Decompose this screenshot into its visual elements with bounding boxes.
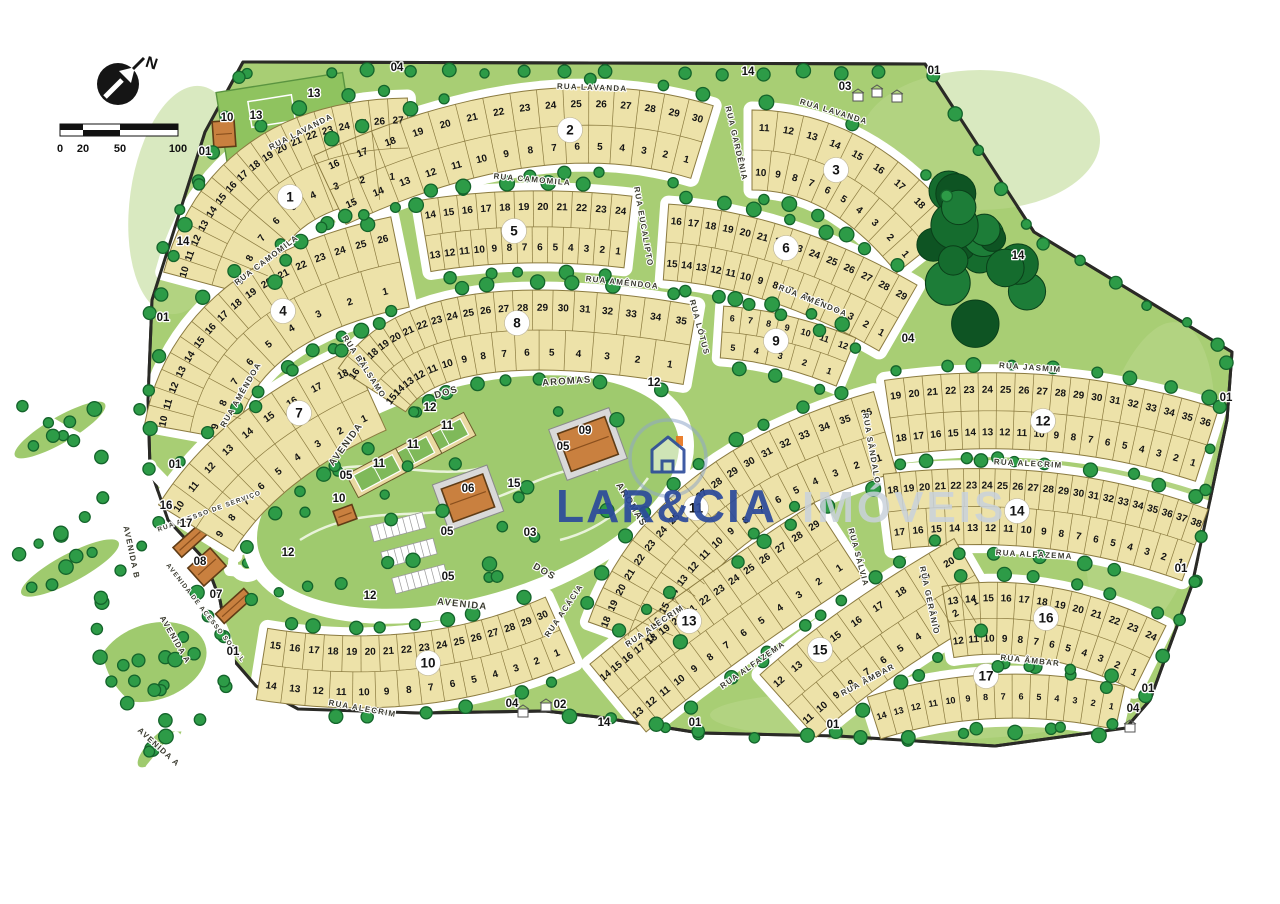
lot-number: 29 — [1072, 389, 1085, 401]
tree-icon — [1101, 682, 1113, 694]
lot-number: 7 — [522, 242, 528, 253]
tree-icon — [193, 179, 204, 190]
lot-number: 12 — [999, 427, 1011, 438]
tree-icon — [280, 254, 292, 266]
tree-icon — [252, 386, 264, 398]
tree-icon — [157, 242, 169, 254]
tree-icon — [295, 486, 305, 496]
tree-icon — [339, 209, 352, 222]
lot-number: 8 — [506, 243, 512, 254]
tree-icon — [815, 384, 825, 394]
tree-icon — [17, 401, 28, 412]
area-label: 01 — [157, 312, 170, 324]
lot-number: 23 — [595, 204, 607, 216]
tree-icon — [749, 733, 759, 743]
tree-icon — [194, 714, 205, 725]
tree-icon — [959, 728, 969, 738]
tree-icon — [891, 259, 904, 272]
tree-icon — [1195, 531, 1207, 543]
tree-icon — [439, 94, 449, 104]
lot-number: 12 — [952, 635, 965, 647]
tree-icon — [816, 610, 826, 620]
tree-icon — [46, 579, 58, 591]
lot-number: 19 — [518, 202, 530, 213]
lot-number: 22 — [945, 385, 957, 397]
tree-icon — [68, 435, 80, 447]
tree-icon — [869, 571, 882, 584]
tree-icon — [402, 461, 413, 472]
lot-number: 14 — [965, 427, 977, 438]
tree-icon — [547, 677, 557, 687]
tree-icon — [1211, 338, 1224, 351]
area-label: 04 — [1127, 703, 1140, 715]
forest-tree-icon — [939, 246, 968, 275]
lot-number: 13 — [982, 427, 994, 438]
tree-icon — [405, 66, 416, 77]
tree-icon — [443, 63, 457, 77]
lot-number: 16 — [930, 429, 942, 441]
area-label: 01 — [227, 646, 240, 658]
tree-icon — [1200, 484, 1211, 495]
lot-number: 9 — [965, 693, 971, 703]
block-number: 14 — [1009, 504, 1025, 519]
tree-icon — [613, 624, 626, 637]
tree-icon — [300, 507, 310, 517]
area-label: 16 — [160, 500, 173, 512]
area-label: 10 — [333, 493, 346, 505]
tree-icon — [856, 703, 870, 717]
tree-icon — [785, 214, 795, 224]
tree-icon — [269, 507, 282, 520]
lot-number: 5 — [597, 142, 603, 153]
tree-icon — [292, 101, 307, 116]
tree-icon — [379, 85, 390, 96]
tree-icon — [785, 519, 796, 530]
tree-icon — [1174, 614, 1185, 625]
tree-icon — [531, 275, 545, 289]
tree-icon — [362, 443, 374, 455]
lot-number: 5 — [552, 242, 558, 253]
tree-icon — [409, 407, 419, 417]
lot-number: 20 — [365, 647, 377, 658]
tree-icon — [1027, 571, 1039, 583]
lot-number: 19 — [890, 390, 903, 402]
lot-number: 15 — [666, 259, 678, 271]
lot-number: 26 — [1018, 385, 1030, 397]
tree-icon — [79, 512, 90, 523]
lot-number: 10 — [473, 244, 485, 256]
area-label: 04 — [902, 333, 915, 345]
area-label: 13 — [308, 88, 321, 100]
tree-icon — [835, 317, 849, 331]
area-label: 12 — [648, 377, 661, 389]
tree-icon — [325, 132, 339, 146]
lot-number: 21 — [926, 387, 938, 399]
tree-icon — [317, 467, 331, 481]
area-label: 03 — [839, 81, 852, 93]
lot-number: 10 — [1020, 525, 1032, 537]
lot-number: 28 — [1042, 484, 1055, 496]
lot-number: 25 — [570, 99, 582, 110]
tree-icon — [129, 675, 141, 687]
lot-number: 30 — [1072, 487, 1085, 500]
tree-icon — [658, 80, 668, 90]
tree-icon — [373, 318, 385, 330]
tree-icon — [159, 729, 174, 744]
area-label: 01 — [928, 65, 941, 77]
tree-icon — [303, 581, 313, 591]
tree-icon — [87, 402, 102, 417]
tree-icon — [757, 68, 770, 81]
area-label: 07 — [210, 589, 223, 601]
block-number: 17 — [978, 669, 993, 684]
lot-number: 13 — [695, 262, 708, 275]
block-number: 2 — [566, 123, 574, 138]
tree-icon — [593, 375, 606, 388]
lot-number: 26 — [374, 116, 386, 128]
tree-icon — [747, 202, 762, 217]
tree-icon — [27, 582, 37, 592]
lot-number: 27 — [1027, 482, 1039, 494]
tree-icon — [995, 183, 1008, 196]
tree-icon — [380, 490, 389, 499]
area-label: 17 — [180, 518, 193, 530]
area-label: 11 — [441, 420, 454, 432]
tree-icon — [64, 416, 76, 428]
generated-map: 1011121314151617181920212223242526279876… — [8, 62, 1236, 773]
lot-number: 14 — [424, 209, 437, 222]
tree-icon — [554, 407, 563, 416]
tree-icon — [386, 306, 397, 317]
tree-icon — [812, 209, 824, 221]
area-label: 11 — [373, 458, 386, 470]
area-label: 15 — [508, 478, 521, 490]
tree-icon — [942, 360, 953, 371]
lot-number: 11 — [759, 123, 771, 135]
scale-tick: 0 — [57, 143, 63, 155]
tree-icon — [94, 591, 107, 604]
lot-number: 12 — [782, 125, 795, 138]
lot-number: 23 — [519, 102, 532, 114]
watermark-brand: LAR&CIA — [556, 480, 777, 532]
tree-icon — [1129, 468, 1140, 479]
lot-number: 13 — [947, 595, 960, 607]
lot-number: 25 — [1000, 385, 1012, 396]
tree-icon — [28, 441, 38, 451]
tree-icon — [391, 203, 401, 213]
lot-number: 14 — [965, 594, 977, 606]
lot-number: 24 — [982, 385, 994, 396]
tree-icon — [1220, 356, 1233, 369]
block-number: 9 — [772, 334, 780, 349]
tree-icon — [729, 432, 743, 446]
tree-icon — [59, 560, 73, 574]
lot-number: 5 — [1036, 692, 1042, 702]
lot-number: 9 — [1002, 634, 1008, 645]
lot-number: 5 — [549, 348, 555, 359]
lot-number: 4 — [568, 243, 574, 254]
lot-number: 8 — [983, 692, 989, 702]
tree-icon — [902, 731, 916, 745]
tree-icon — [790, 502, 800, 512]
tree-icon — [1072, 579, 1083, 590]
area-label: 10 — [221, 112, 234, 124]
tree-icon — [1142, 301, 1151, 310]
tree-icon — [159, 714, 172, 727]
lot-number: 16 — [670, 216, 682, 228]
tree-icon — [668, 288, 680, 300]
tree-icon — [329, 710, 343, 724]
block-number: 10 — [420, 656, 435, 671]
tree-icon — [1092, 367, 1103, 378]
scale-tick: 100 — [169, 143, 187, 155]
tree-icon — [649, 717, 663, 731]
tree-icon — [132, 654, 145, 667]
tree-icon — [168, 251, 179, 262]
tree-icon — [806, 309, 816, 319]
tree-icon — [679, 67, 691, 79]
lot-number: 15 — [947, 428, 959, 440]
lot-number: 15 — [269, 640, 282, 653]
tree-icon — [850, 343, 860, 353]
tree-icon — [354, 323, 369, 338]
tree-icon — [801, 728, 815, 742]
tree-icon — [992, 661, 1004, 673]
tree-icon — [974, 454, 987, 467]
lot-number: 26 — [480, 305, 493, 317]
tree-icon — [728, 292, 743, 307]
lot-number: 17 — [913, 430, 926, 442]
lot-number: 31 — [579, 304, 591, 316]
tree-icon — [449, 458, 461, 470]
lot-number: 11 — [336, 687, 347, 698]
lot-number: 6 — [524, 348, 530, 359]
tree-icon — [919, 454, 932, 467]
area-label: 12 — [364, 590, 377, 602]
tree-icon — [797, 401, 809, 413]
tree-icon — [406, 553, 420, 567]
tree-icon — [480, 69, 489, 78]
lot-number: 21 — [556, 202, 568, 213]
tree-icon — [444, 272, 456, 284]
lot-number: 7 — [1001, 691, 1006, 701]
site-plan-svg: 1011121314151617181920212223242526279876… — [0, 0, 1280, 904]
watermark-suffix: IMÓVEIS — [802, 482, 1006, 532]
lot-number: 28 — [1054, 388, 1067, 400]
tree-icon — [796, 64, 810, 78]
lot-number: 18 — [499, 202, 511, 214]
lot-number: 16 — [461, 205, 474, 217]
tree-icon — [836, 595, 846, 605]
lot-number: 11 — [1016, 428, 1028, 440]
tree-icon — [970, 723, 982, 735]
tree-icon — [562, 709, 576, 723]
lot-number: 12 — [910, 701, 922, 713]
tree-icon — [713, 291, 726, 304]
tree-icon — [775, 309, 786, 320]
tree-icon — [409, 198, 424, 213]
lot-number: 26 — [1012, 481, 1024, 493]
tree-icon — [997, 567, 1011, 581]
lot-number: 18 — [704, 220, 717, 233]
tree-icon — [360, 63, 374, 77]
lot-number: 17 — [308, 645, 320, 657]
tree-icon — [854, 731, 867, 744]
lot-number: 10 — [945, 695, 956, 706]
tree-icon — [1055, 722, 1065, 732]
lot-number: 32 — [601, 306, 614, 318]
tree-icon — [316, 222, 327, 233]
tree-icon — [685, 701, 698, 714]
tree-icon — [1104, 588, 1116, 600]
tree-icon — [1108, 564, 1120, 576]
lot-number: 10 — [755, 168, 767, 180]
lot-number: 20 — [908, 388, 921, 400]
tree-icon — [479, 277, 493, 291]
tree-icon — [891, 366, 901, 376]
tree-icon — [97, 492, 109, 504]
tree-icon — [1021, 219, 1031, 229]
tree-icon — [835, 387, 848, 400]
tree-icon — [1110, 276, 1123, 289]
tree-icon — [245, 594, 257, 606]
tree-icon — [382, 557, 394, 569]
lot-number: 22 — [576, 203, 588, 215]
tree-icon — [410, 619, 421, 630]
tree-icon — [1152, 607, 1164, 619]
tree-icon — [558, 65, 571, 78]
tree-icon — [459, 700, 472, 713]
tree-icon — [921, 170, 931, 180]
tree-icon — [306, 619, 320, 633]
tree-icon — [93, 650, 107, 664]
tree-icon — [115, 565, 126, 576]
tree-icon — [973, 145, 983, 155]
tree-icon — [642, 604, 652, 614]
tree-icon — [1152, 478, 1165, 491]
tree-icon — [733, 362, 747, 376]
tree-icon — [732, 556, 744, 568]
tree-icon — [34, 539, 43, 548]
tree-icon — [718, 196, 732, 210]
area-label: 01 — [1142, 683, 1155, 695]
area-label: 09 — [579, 425, 592, 437]
lot-number: 14 — [265, 680, 278, 693]
lot-number: 19 — [346, 647, 358, 658]
tree-icon — [178, 218, 192, 232]
tree-icon — [420, 707, 432, 719]
tree-icon — [759, 95, 774, 110]
scale-tick: 20 — [77, 143, 89, 155]
tree-icon — [106, 676, 117, 687]
tree-icon — [782, 197, 797, 212]
lot-number: 18 — [895, 432, 908, 444]
tree-icon — [743, 299, 755, 311]
tree-icon — [441, 613, 455, 627]
lot-number: 17 — [480, 203, 492, 215]
tree-icon — [1183, 318, 1192, 327]
tree-icon — [241, 541, 254, 554]
tree-icon — [929, 535, 940, 546]
tree-icon — [374, 622, 385, 633]
tree-icon — [342, 89, 355, 102]
tree-icon — [153, 350, 166, 363]
area-label: 04 — [506, 698, 519, 710]
tree-icon — [385, 513, 397, 525]
block-number: 15 — [812, 643, 828, 658]
tree-icon — [1123, 371, 1137, 385]
tree-icon — [769, 369, 782, 382]
lot-number: 24 — [545, 100, 557, 112]
tree-icon — [894, 675, 908, 689]
tree-icon — [121, 697, 134, 710]
tree-icon — [933, 653, 943, 663]
tree-icon — [1037, 238, 1049, 250]
lot-number: 33 — [625, 308, 638, 320]
tree-icon — [274, 588, 283, 597]
tree-icon — [1156, 649, 1169, 662]
tree-icon — [356, 120, 369, 133]
tree-icon — [202, 427, 214, 439]
tree-icon — [581, 597, 594, 610]
tree-icon — [1075, 255, 1085, 265]
block-number: 5 — [510, 224, 518, 239]
lot-number: 11 — [459, 246, 471, 258]
block-number: 3 — [832, 163, 840, 178]
lot-number: 22 — [400, 644, 413, 656]
lot-number: 6 — [1018, 691, 1023, 701]
building-gatehouse — [212, 120, 236, 147]
area-label: 05 — [441, 526, 454, 538]
lot-number: 23 — [963, 385, 975, 396]
lot-number: 5 — [730, 342, 736, 352]
area-label: 11 — [407, 439, 420, 451]
block-number: 1 — [286, 190, 294, 205]
lot-number: 14 — [680, 260, 693, 272]
lot-number: 16 — [289, 643, 302, 655]
lot-number: 26 — [596, 99, 608, 110]
tree-icon — [471, 377, 484, 390]
lot-number: 10 — [358, 687, 370, 698]
tree-icon — [716, 69, 728, 81]
tree-icon — [233, 71, 245, 83]
lot-number: 17 — [687, 218, 700, 230]
lot-number: 27 — [392, 115, 404, 126]
lot-number: 25 — [462, 307, 475, 320]
tree-icon — [576, 177, 590, 191]
tree-icon — [43, 418, 53, 428]
tree-icon — [941, 190, 953, 202]
tree-icon — [696, 88, 710, 102]
lot-number: 29 — [1057, 485, 1070, 497]
tree-icon — [668, 178, 678, 188]
tree-icon — [513, 492, 524, 503]
tree-icon — [948, 107, 962, 121]
tree-icon — [955, 570, 967, 582]
tree-icon — [680, 191, 692, 203]
tree-icon — [894, 556, 906, 568]
area-label: 01 — [1220, 392, 1233, 404]
tree-icon — [268, 275, 282, 289]
tree-icon — [966, 358, 981, 373]
tree-icon — [482, 557, 496, 571]
block-number: 16 — [1038, 611, 1054, 626]
lot-number: 30 — [557, 303, 569, 314]
tree-icon — [517, 590, 531, 604]
tree-icon — [975, 624, 988, 637]
tree-icon — [436, 504, 449, 517]
area-label: 01 — [827, 719, 840, 731]
